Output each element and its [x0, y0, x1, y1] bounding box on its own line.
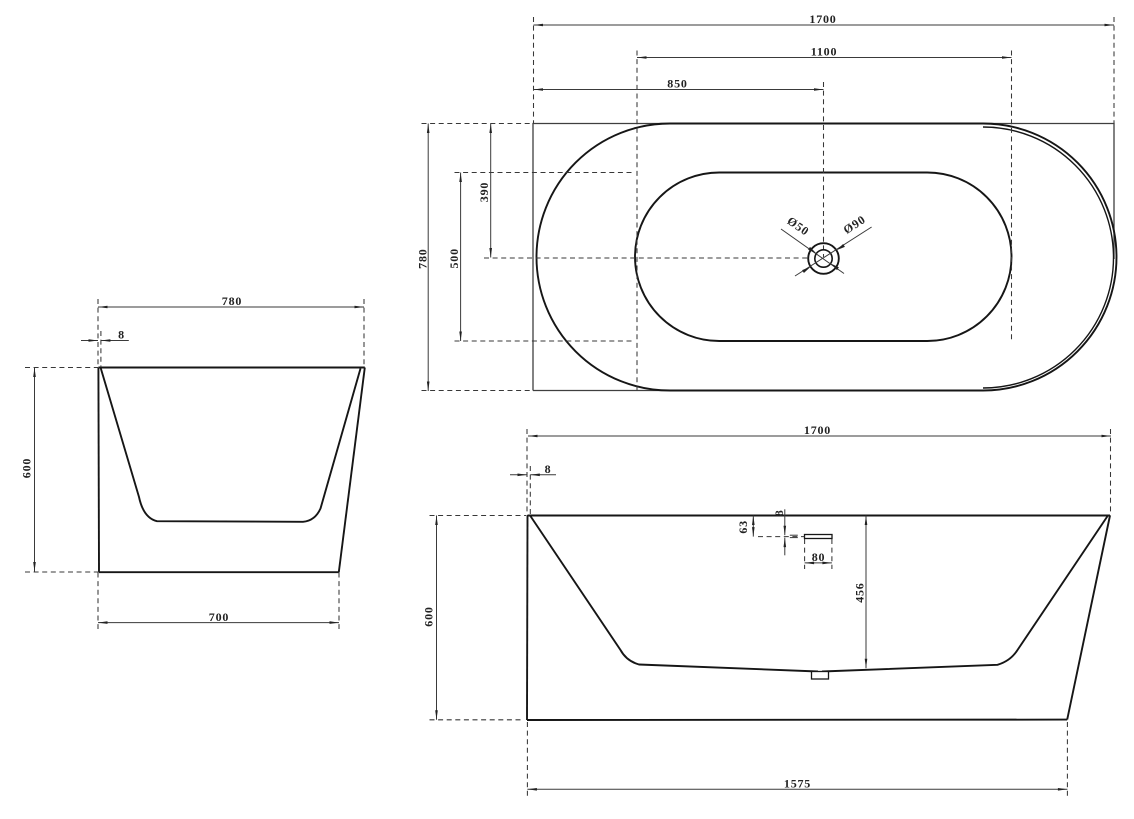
svg-text:63: 63: [736, 520, 750, 534]
svg-text:500: 500: [447, 248, 461, 268]
svg-text:1100: 1100: [811, 45, 838, 59]
svg-text:390: 390: [477, 182, 491, 202]
svg-text:1700: 1700: [809, 12, 836, 26]
svg-text:850: 850: [667, 77, 687, 91]
svg-text:780: 780: [222, 294, 242, 308]
svg-text:1700: 1700: [804, 423, 831, 437]
svg-text:456: 456: [852, 582, 866, 602]
svg-text:700: 700: [209, 610, 229, 624]
svg-text:1575: 1575: [784, 777, 811, 791]
svg-text:8: 8: [772, 509, 786, 516]
svg-text:8: 8: [118, 328, 125, 342]
svg-text:600: 600: [422, 606, 436, 626]
svg-text:80: 80: [812, 550, 826, 564]
svg-text:8: 8: [545, 462, 552, 476]
svg-text:780: 780: [415, 248, 429, 268]
svg-text:600: 600: [19, 458, 33, 478]
